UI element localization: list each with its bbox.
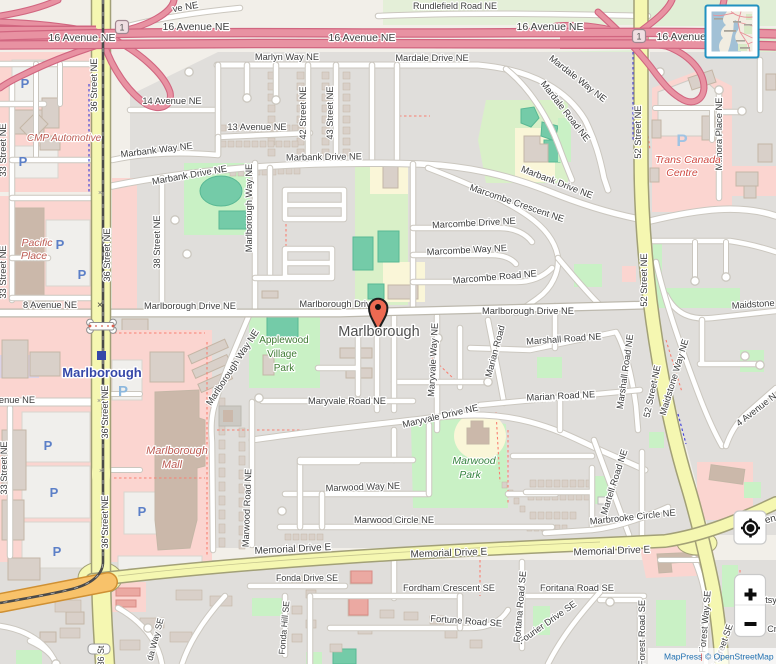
- svg-text:Marbank Drive NE: Marbank Drive NE: [286, 151, 362, 162]
- svg-text:Marlborough: Marlborough: [338, 324, 419, 340]
- svg-text:P: P: [56, 237, 65, 252]
- svg-text:en: en: [764, 513, 776, 526]
- svg-text:14 Avenue NE: 14 Avenue NE: [142, 96, 201, 106]
- svg-text:P: P: [44, 438, 53, 453]
- svg-text:1: 1: [119, 23, 124, 33]
- svg-text:Marlborough Way NE: Marlborough Way NE: [244, 164, 254, 253]
- svg-text:8 Avenue NE: 8 Avenue NE: [23, 300, 77, 310]
- svg-text:Mall: Mall: [162, 459, 183, 471]
- svg-text:16 Avenue NE: 16 Avenue NE: [517, 21, 584, 33]
- svg-text:P: P: [676, 131, 687, 150]
- svg-text:Foritana Road SE: Foritana Road SE: [540, 583, 614, 593]
- svg-text:Marlborough Drive NE: Marlborough Drive NE: [482, 306, 574, 316]
- svg-text:Maryvale Road NE: Maryvale Road NE: [308, 396, 386, 406]
- svg-text:36 Street NE: 36 Street NE: [102, 228, 112, 281]
- svg-text:P: P: [19, 154, 28, 169]
- svg-text:13 Avenue NE: 13 Avenue NE: [227, 122, 286, 132]
- svg-text:52 Street NE: 52 Street NE: [633, 105, 643, 158]
- svg-text:Marlborough: Marlborough: [146, 445, 208, 457]
- svg-text:Applewood: Applewood: [259, 335, 308, 346]
- svg-text:36 Street NE: 36 Street NE: [100, 385, 110, 438]
- svg-text:Marwood Circle NE: Marwood Circle NE: [354, 515, 434, 525]
- svg-text:P: P: [118, 383, 128, 400]
- svg-text:Marlborough: Marlborough: [62, 365, 141, 380]
- svg-text:Marlborough Drive NE: Marlborough Drive NE: [144, 301, 236, 311]
- svg-text:Centre: Centre: [666, 167, 698, 179]
- svg-text:Mardale Drive NE: Mardale Drive NE: [395, 53, 468, 63]
- svg-text:36 St: 36 St: [96, 645, 106, 664]
- svg-text:×: ×: [98, 190, 102, 197]
- svg-text:38 Street NE: 38 Street NE: [152, 215, 162, 268]
- svg-text:33 Street NE: 33 Street NE: [0, 245, 8, 298]
- svg-text:P: P: [50, 485, 59, 500]
- svg-text:P: P: [78, 267, 87, 282]
- svg-text:Marlyn Way NE: Marlyn Way NE: [255, 52, 319, 62]
- svg-text:Pacific: Pacific: [22, 237, 54, 249]
- svg-text:×: ×: [97, 300, 103, 311]
- svg-text:33 Street NE: 33 Street NE: [0, 123, 8, 176]
- svg-text:16 Avenue NE: 16 Avenue NE: [329, 32, 396, 44]
- svg-text:tsy: tsy: [765, 595, 776, 605]
- svg-text:Place: Place: [21, 250, 47, 262]
- svg-text:P: P: [138, 504, 147, 519]
- svg-text:Forest Road SE: Forest Road SE: [637, 600, 647, 664]
- svg-text:Fonda Drive SE: Fonda Drive SE: [276, 573, 338, 583]
- svg-text:P: P: [53, 544, 62, 559]
- svg-text:36 Street NE: 36 Street NE: [89, 58, 99, 111]
- svg-text:© OpenStreetMap: © OpenStreetMap: [705, 652, 774, 662]
- svg-text:52 Street NE: 52 Street NE: [639, 253, 649, 306]
- svg-text:MapPress: MapPress: [664, 652, 702, 662]
- svg-text:P: P: [21, 76, 30, 91]
- svg-text:Park: Park: [274, 363, 296, 374]
- svg-text:enue NE: enue NE: [0, 395, 35, 405]
- svg-text:16 Avenue NE: 16 Avenue NE: [163, 21, 230, 33]
- svg-text:×: ×: [99, 468, 103, 475]
- svg-text:33 Street NE: 33 Street NE: [0, 441, 9, 494]
- svg-text:CMP Automotive: CMP Automotive: [27, 133, 102, 144]
- svg-text:Trans Canada: Trans Canada: [655, 154, 721, 166]
- svg-text:Village: Village: [267, 349, 297, 360]
- svg-text:Marwood: Marwood: [452, 455, 496, 467]
- svg-text:1: 1: [636, 32, 641, 42]
- svg-text:42 Street NE: 42 Street NE: [298, 86, 308, 139]
- svg-text:Fordham Crescent SE: Fordham Crescent SE: [403, 583, 495, 593]
- svg-text:Rundlefield Road NE: Rundlefield Road NE: [413, 1, 497, 11]
- svg-text:16 Avenue NE: 16 Avenue NE: [49, 32, 116, 44]
- svg-text:36 Street NE: 36 Street NE: [100, 495, 110, 548]
- svg-text:Park: Park: [459, 469, 481, 481]
- svg-text:Cr: Cr: [767, 624, 776, 634]
- svg-text:|: |: [701, 652, 703, 662]
- svg-text:43 Street NE: 43 Street NE: [325, 86, 335, 139]
- svg-text:Marlborough Driv: Marlborough Driv: [299, 299, 371, 309]
